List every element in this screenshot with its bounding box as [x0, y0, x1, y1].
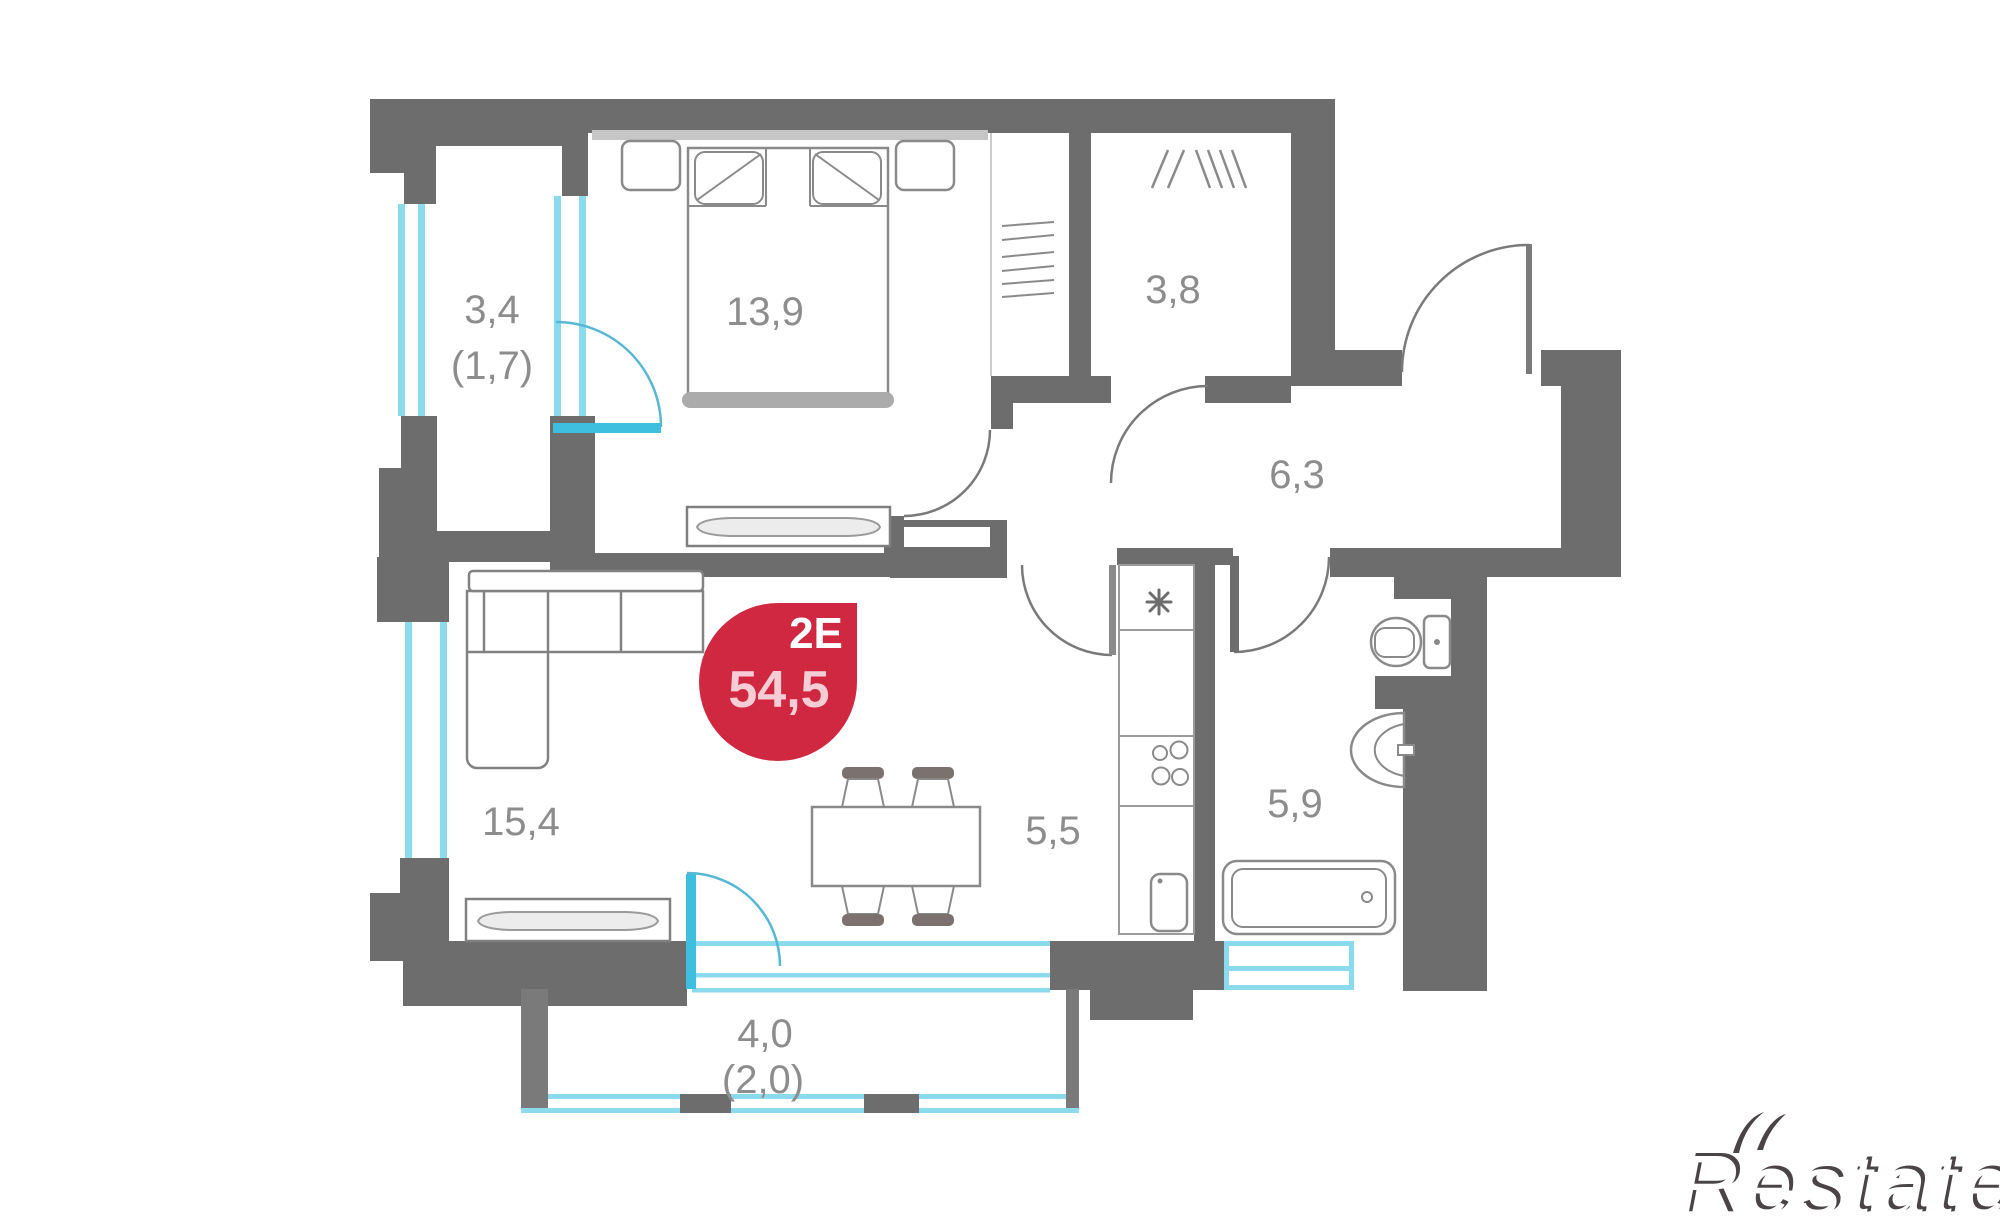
svg-text:(2,0): (2,0): [722, 1058, 804, 1102]
svg-text:54,5: 54,5: [728, 661, 829, 719]
svg-text:(1,7): (1,7): [451, 344, 533, 388]
svg-text:5,5: 5,5: [1025, 809, 1081, 853]
svg-text:6,3: 6,3: [1269, 453, 1325, 497]
svg-text:15,4: 15,4: [482, 800, 560, 844]
svg-text:3,8: 3,8: [1145, 268, 1201, 312]
svg-text:4,0: 4,0: [737, 1012, 793, 1056]
svg-text:5,9: 5,9: [1267, 782, 1323, 826]
svg-text:13,9: 13,9: [726, 290, 804, 334]
svg-text:Restate: Restate: [1678, 1138, 2000, 1223]
svg-text:3,4: 3,4: [464, 288, 520, 332]
svg-text:2E: 2E: [789, 609, 843, 658]
